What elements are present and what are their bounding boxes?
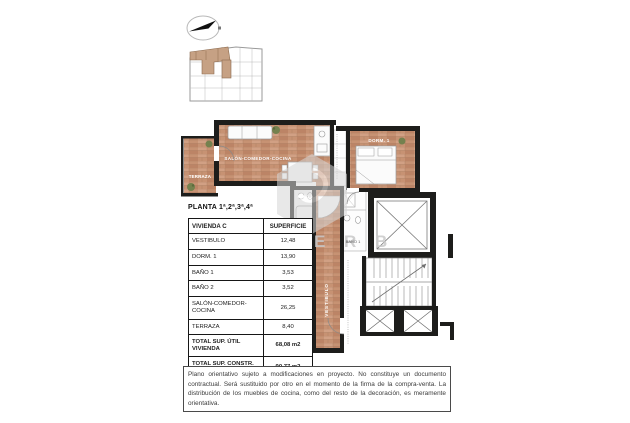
label-bano1: BAÑO 1	[346, 239, 361, 244]
label-dorm1: DORM. 1	[368, 138, 389, 143]
kitchen-counter	[314, 126, 330, 156]
disclaimer-box: Plano orientativo sujeto a modificacione…	[183, 366, 451, 412]
room-name-cell: DORM. 1	[189, 249, 264, 265]
room-area-cell: 12,48	[264, 234, 313, 250]
room-area-cell: 3,52	[264, 281, 313, 297]
table-header-row: VIVIENDA C SUPERFICIE	[189, 219, 313, 234]
room-name-cell: BAÑO 1	[189, 265, 264, 281]
floor-plan-drawing: E R B TERRAZA SALÓN-COMEDOR-COCINA DORM.…	[0, 0, 630, 423]
table-row: BAÑO 2 3,52	[189, 281, 313, 297]
total-label-cell: TOTAL SUP. ÚTIL VIVIENDA	[189, 335, 264, 357]
table-row: DORM. 1 13,90	[189, 249, 313, 265]
ventilation-shafts	[360, 306, 438, 336]
table-row: BAÑO 1 3,53	[189, 265, 313, 281]
room-name-cell: SALÓN-COMEDOR-COCINA	[189, 297, 264, 320]
washbasin	[344, 215, 350, 221]
key-plan	[190, 47, 262, 101]
label-terraza: TERRAZA	[189, 174, 212, 179]
room-name-cell: BAÑO 2	[189, 281, 264, 297]
label-salon: SALÓN-COMEDOR-COCINA	[224, 154, 292, 161]
room-area-cell: 8,40	[264, 319, 313, 335]
label-vestibulo: VESTIBULO	[324, 283, 329, 317]
plant-icon	[399, 138, 406, 145]
plant-icon	[272, 126, 280, 134]
room-name-cell: VESTIBULO	[189, 234, 264, 250]
room-name-cell: TERRAZA	[189, 319, 264, 335]
page-title: PLANTA 1ª,2ª,3ª,4ª	[188, 204, 253, 211]
table-header-value: SUPERFICIE	[264, 219, 313, 234]
room-area-cell: 26,25	[264, 297, 313, 320]
surface-table: VIVIENDA C SUPERFICIE VESTIBULO 12,48 DO…	[188, 218, 313, 379]
table-row: SALÓN-COMEDOR-COCINA 26,25	[189, 297, 313, 320]
plant-icon	[206, 141, 213, 148]
table-total-row: TOTAL SUP. ÚTIL VIVIENDA 68,08 m2	[189, 335, 313, 357]
table-row: VESTIBULO 12,48	[189, 234, 313, 250]
total-value-cell: 68,08 m2	[264, 335, 313, 357]
toilet	[355, 217, 360, 224]
label-bano2: BAÑO 2	[297, 194, 313, 199]
plan-sheet: E R B TERRAZA SALÓN-COMEDOR-COCINA DORM.…	[0, 0, 630, 423]
table-row: TERRAZA 8,40	[189, 319, 313, 335]
table-header-name: VIVIENDA C	[189, 219, 264, 234]
sofa	[228, 126, 272, 139]
plant-icon	[187, 183, 195, 191]
room-area-cell: 13,90	[264, 249, 313, 265]
stairs	[362, 256, 436, 306]
north-arrow-icon	[187, 16, 221, 40]
room-area-cell: 3,53	[264, 265, 313, 281]
